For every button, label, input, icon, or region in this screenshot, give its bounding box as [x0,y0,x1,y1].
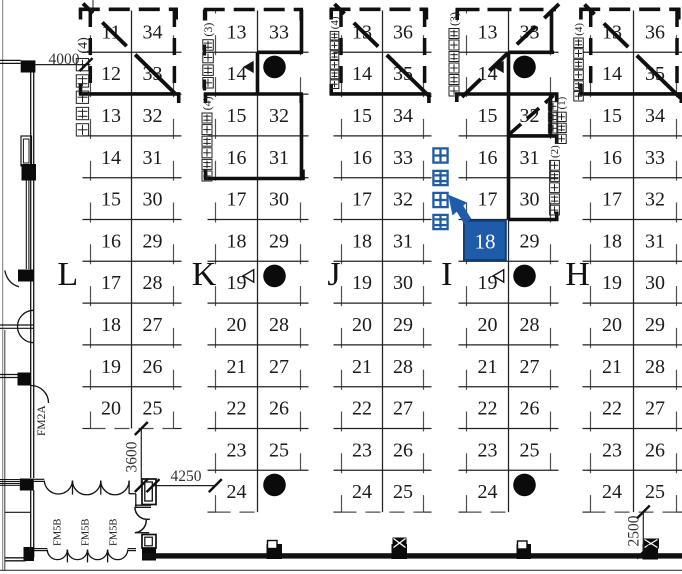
svg-text:J: J [327,256,340,293]
svg-text:14: 14 [352,63,372,85]
svg-text:22: 22 [227,398,247,420]
svg-text:18: 18 [352,230,372,252]
svg-text:33: 33 [645,147,665,169]
svg-text:31: 31 [520,147,540,169]
svg-text:L: L [57,256,78,293]
svg-text:19: 19 [101,356,121,378]
svg-text:32: 32 [143,105,163,127]
svg-text:15: 15 [227,105,247,127]
svg-text:32: 32 [269,105,289,127]
svg-text:27: 27 [645,398,665,420]
svg-text:13: 13 [101,105,121,127]
svg-text:18: 18 [602,230,622,252]
svg-text:(4): (4) [200,96,214,110]
svg-text:28: 28 [269,314,289,336]
svg-text:30: 30 [645,272,665,294]
svg-text:15: 15 [101,189,121,211]
svg-text:23: 23 [602,439,622,461]
svg-text:30: 30 [520,189,540,211]
svg-text:25: 25 [645,481,665,503]
svg-text:4000: 4000 [49,51,80,68]
svg-text:30: 30 [269,189,289,211]
svg-text:FM5B: FM5B [53,519,64,546]
svg-text:21: 21 [602,356,622,378]
svg-text:15: 15 [478,105,498,127]
svg-text:29: 29 [269,230,289,252]
svg-text:31: 31 [269,147,289,169]
svg-text:15: 15 [602,105,622,127]
svg-text:27: 27 [143,314,163,336]
svg-text:I: I [441,256,452,293]
svg-text:27: 27 [393,398,413,420]
svg-text:(3): (3) [201,23,215,37]
svg-text:26: 26 [520,398,540,420]
svg-text:22: 22 [352,398,372,420]
svg-text:(4): (4) [329,16,341,29]
svg-text:16: 16 [602,147,622,169]
svg-text:16: 16 [101,230,121,252]
svg-text:18: 18 [475,229,496,253]
svg-text:21: 21 [227,356,247,378]
svg-text:27: 27 [269,356,289,378]
svg-text:29: 29 [143,230,163,252]
svg-text:14: 14 [227,63,247,85]
svg-text:31: 31 [393,230,413,252]
svg-text:32: 32 [645,189,665,211]
svg-text:29: 29 [520,230,540,252]
svg-text:23: 23 [227,439,247,461]
svg-text:25: 25 [269,439,289,461]
svg-text:26: 26 [269,398,289,420]
svg-text:25: 25 [520,439,540,461]
svg-text:16: 16 [352,147,372,169]
svg-text:FM2A: FM2A [36,405,48,436]
svg-text:27: 27 [520,356,540,378]
svg-text:20: 20 [352,314,372,336]
svg-text:36: 36 [393,21,413,43]
svg-text:(2): (2) [549,145,561,158]
svg-text:25: 25 [143,398,163,420]
svg-text:24: 24 [227,481,247,503]
svg-text:17: 17 [101,272,121,294]
svg-text:16: 16 [227,147,247,169]
svg-text:(4): (4) [573,23,585,36]
svg-text:13: 13 [227,21,247,43]
svg-text:33: 33 [393,147,413,169]
svg-text:17: 17 [478,189,498,211]
svg-text:21: 21 [352,356,372,378]
svg-text:15: 15 [352,105,372,127]
svg-text:20: 20 [478,314,498,336]
svg-text:36: 36 [645,21,665,43]
svg-text:(1): (1) [556,96,568,109]
svg-text:31: 31 [143,147,163,169]
svg-text:31: 31 [645,230,665,252]
svg-text:24: 24 [478,481,498,503]
svg-text:26: 26 [645,439,665,461]
svg-text:H: H [565,256,590,293]
svg-text:20: 20 [602,314,622,336]
svg-text:26: 26 [393,439,413,461]
svg-text:29: 29 [645,314,665,336]
svg-text:22: 22 [602,398,622,420]
svg-text:28: 28 [143,272,163,294]
svg-text:FM5B: FM5B [109,519,120,546]
svg-text:14: 14 [101,147,121,169]
svg-text:(3): (3) [447,12,461,26]
svg-text:30: 30 [143,189,163,211]
svg-text:17: 17 [227,189,247,211]
svg-text:FM5B: FM5B [81,519,92,546]
svg-text:24: 24 [602,481,622,503]
svg-text:18: 18 [227,230,247,252]
svg-text:24: 24 [352,481,372,503]
svg-text:34: 34 [143,21,163,43]
svg-text:16: 16 [478,147,498,169]
svg-text:28: 28 [393,356,413,378]
svg-text:K: K [192,256,217,293]
svg-text:34: 34 [645,105,665,127]
svg-text:32: 32 [393,189,413,211]
svg-text:25: 25 [393,481,413,503]
svg-text:17: 17 [352,189,372,211]
svg-text:30: 30 [393,272,413,294]
svg-text:19: 19 [352,272,372,294]
svg-text:20: 20 [101,398,121,420]
svg-text:28: 28 [645,356,665,378]
svg-text:12: 12 [101,63,121,85]
svg-text:21: 21 [478,356,498,378]
svg-text:33: 33 [269,21,289,43]
svg-text:17: 17 [602,189,622,211]
svg-text:3600: 3600 [124,441,141,472]
svg-text:28: 28 [520,314,540,336]
svg-text:20: 20 [227,314,247,336]
svg-text:13: 13 [478,21,498,43]
svg-text:26: 26 [143,356,163,378]
svg-text:23: 23 [352,439,372,461]
svg-text:18: 18 [101,314,121,336]
svg-text:34: 34 [393,105,413,127]
svg-text:2500: 2500 [626,515,643,546]
svg-text:19: 19 [602,272,622,294]
svg-text:29: 29 [393,314,413,336]
svg-text:4250: 4250 [171,468,202,485]
svg-text:23: 23 [478,439,498,461]
svg-text:22: 22 [478,398,498,420]
svg-text:14: 14 [602,63,622,85]
